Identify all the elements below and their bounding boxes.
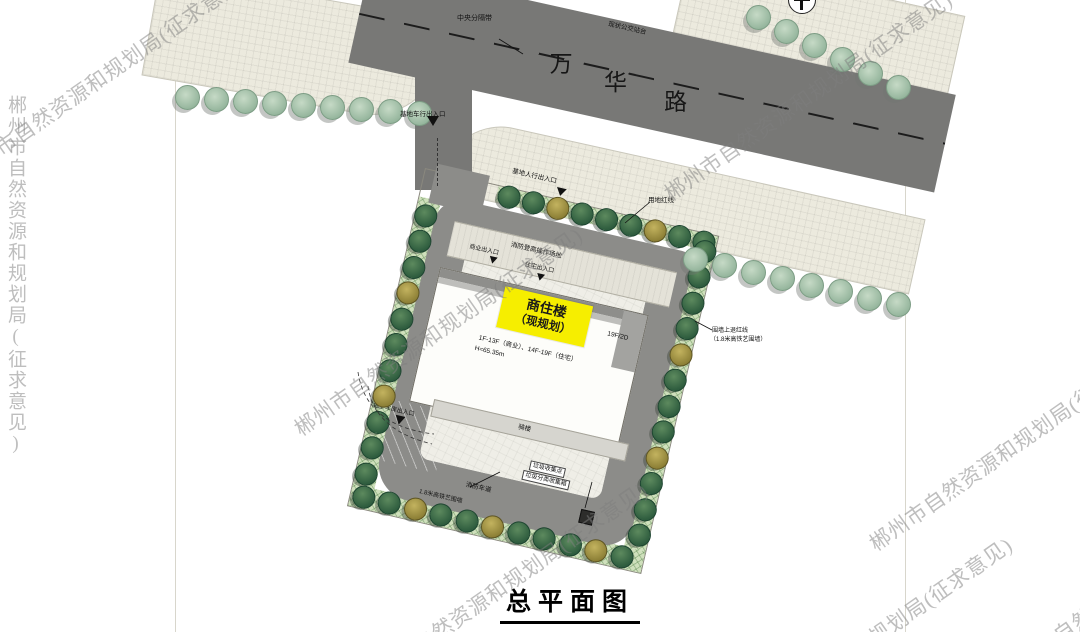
- garage-entrance-arrow: [394, 415, 406, 426]
- tree-icon: [857, 286, 882, 311]
- north-needle: [800, 0, 803, 10]
- median-strip-label: 中央分隔带: [457, 13, 492, 23]
- tree-icon: [349, 97, 374, 122]
- red-line-dash: [437, 138, 438, 186]
- tree-icon: [746, 5, 771, 30]
- tree-icon: [802, 33, 827, 58]
- fence-setback-label2: （1.8米高铁艺围墙）: [710, 334, 766, 343]
- site-plan-sheet: 万 华 路 中央分隔带 现状公交站台 消防登高操作场地 骑楼 商住楼 （现规划）…: [0, 0, 1080, 632]
- red-line-label: 用地红线: [648, 194, 674, 204]
- commercial-entrance-arrow: [488, 256, 497, 265]
- site-parcel: 消防登高操作场地 骑楼 商住楼 （现规划） 1F-13F（商业）、14F-19F…: [347, 168, 719, 574]
- tree-icon: [858, 61, 883, 86]
- watermark: 郴州市自然资源和规划局(征求意见): [2, 95, 29, 456]
- tree-icon: [828, 279, 853, 304]
- tree-icon: [378, 99, 403, 124]
- tree-icon: [204, 87, 229, 112]
- tree-icon: [233, 89, 258, 114]
- tree-icon: [262, 91, 287, 116]
- north-crossbar: [794, 0, 810, 1]
- tree-icon: [770, 266, 795, 291]
- residential-entrance-arrow: [536, 273, 545, 282]
- tree-icon: [799, 273, 824, 298]
- tree-icon: [320, 95, 345, 120]
- tree-icon: [830, 47, 855, 72]
- tree-icon: [774, 19, 799, 44]
- tree-icon: [741, 260, 766, 285]
- tree-icon: [175, 85, 200, 110]
- road-name-char: 华: [604, 63, 627, 97]
- tree-icon: [712, 253, 737, 278]
- vehicle-entrance-arrow: [427, 116, 439, 126]
- fence-setback-label: 围墙上退红线: [712, 325, 748, 334]
- tree-icon: [886, 75, 911, 100]
- watermark: 郴州市自然资源和规划局(征求意见): [863, 334, 1080, 557]
- tree-icon: [683, 247, 708, 272]
- watermark: 郴州市自然资源和规划局(征求意见): [993, 464, 1080, 632]
- watermark: 郴州市自然资源和规划局(征求意见): [718, 529, 1019, 632]
- drawing-title: 总平面图: [500, 582, 640, 624]
- road-name-char: 万: [550, 45, 573, 79]
- tree-icon: [886, 292, 911, 317]
- road-name-char: 路: [664, 82, 687, 116]
- tree-icon: [291, 93, 316, 118]
